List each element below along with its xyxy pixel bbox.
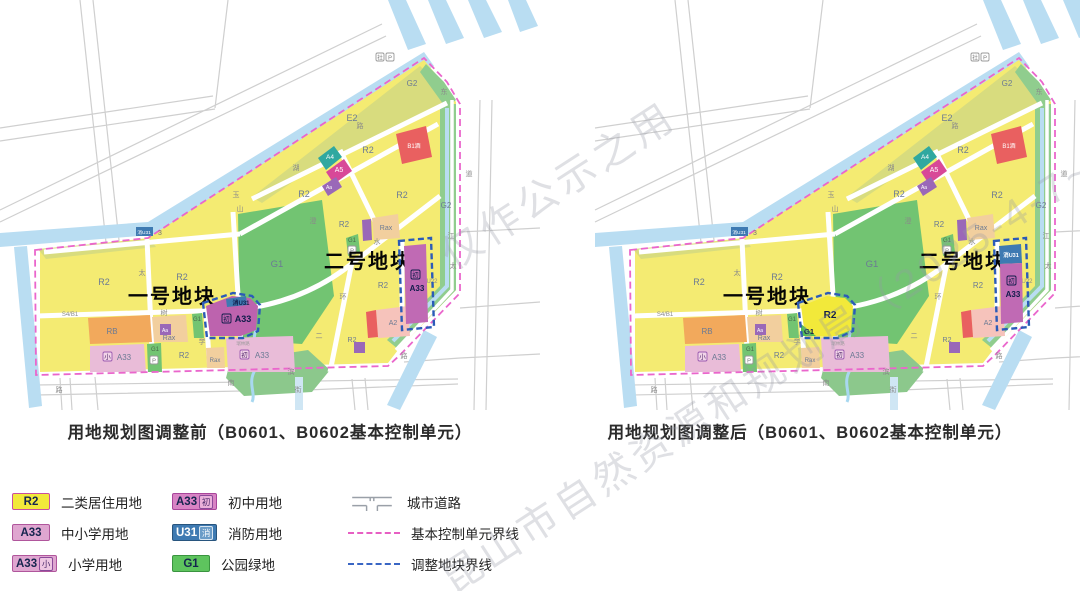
map-label: 滨 <box>288 367 295 376</box>
map-label: A33 <box>712 353 727 362</box>
map-label: A33 <box>410 284 425 293</box>
map-label: 湖 <box>888 163 895 172</box>
legend-subchip-a33-xiao: 小 <box>39 557 53 571</box>
map-label: 消U31 <box>1003 251 1019 259</box>
map-label: G1 <box>866 259 879 270</box>
map-label: 澄 <box>905 216 912 225</box>
legend-label-unit-boundary: 基本控制单元界线 <box>411 523 519 543</box>
map-label: Aa <box>326 185 332 191</box>
map-label: R2 <box>298 189 310 199</box>
map-label: RB <box>701 327 712 336</box>
map-after-content: PP社P小初湖澄玉山太树学水环二南滨街路路路东江太道瑞林路E2G2G2G1R2R… <box>595 0 1080 410</box>
legend-label-a33-xiao: 小学用地 <box>68 554 122 574</box>
legend-label-adjust-boundary: 调整地块界线 <box>411 554 492 574</box>
label-chip-char: 初 <box>223 314 229 323</box>
map-label: 水 <box>969 237 976 246</box>
map-label: A33 <box>850 351 865 360</box>
map-label: R2 <box>378 281 389 290</box>
map-label: S4/B1 <box>62 312 79 318</box>
city-road-icon <box>348 493 396 511</box>
label-chip-char: 初 <box>412 270 418 279</box>
map-label: 湖 <box>293 163 300 172</box>
legend: R2二类居住用地A33中小学用地A33小小学用地A33初初中用地U31消消防用地… <box>12 486 598 579</box>
map-label: 澄 <box>310 216 317 225</box>
map-label: 山 <box>832 204 839 213</box>
map-label: G2 <box>407 79 418 88</box>
map-label: R2 <box>339 220 350 229</box>
map-label: R2 <box>98 277 110 287</box>
map-after-panel: PP社P小初湖澄玉山太树学水环二南滨街路路路东江太道瑞林路E2G2G2G1R2R… <box>540 0 1080 412</box>
map-label: 环 <box>935 293 942 301</box>
map-label: 环 <box>340 293 347 301</box>
map-label: G1 <box>804 327 814 336</box>
map-before-panel: PP社P小初湖澄玉山太树学水环二南滨街路路路东江太道瑞林路E2G2G2G1R2R… <box>0 0 540 412</box>
map-label: E2 <box>346 113 357 123</box>
map-label: 山 <box>237 204 244 213</box>
map-label: 太 <box>139 268 146 277</box>
map-label: 路 <box>56 385 63 394</box>
map-label: 玉 <box>233 191 240 199</box>
legend-item-a33-xiao: A33小小学用地 <box>12 554 172 574</box>
label-chip-char: 社 <box>377 53 383 61</box>
canal-stripes <box>388 0 538 50</box>
canal-stripes <box>983 0 1080 50</box>
map-label: 街 <box>890 385 897 394</box>
map-label: 消U31 <box>232 299 250 307</box>
label-chip-char: P <box>388 55 392 61</box>
map-label: 江 <box>1043 232 1050 240</box>
b1-tiny-block <box>961 310 973 338</box>
map-label: R2 <box>774 351 785 360</box>
legend-label-a33: 中小学用地 <box>61 523 129 543</box>
map-label: 3 <box>158 230 162 237</box>
map-label: G2 <box>1036 201 1047 210</box>
legend-swatch-u31: U31消 <box>172 524 217 541</box>
legend-swatch-r2: R2 <box>12 493 50 510</box>
map-label: B1酒 <box>407 142 420 150</box>
label-chip-char: 社 <box>972 53 978 61</box>
map-label: A5 <box>930 167 939 174</box>
legend-label-u31: 消防用地 <box>228 523 282 543</box>
map-label: 树 <box>161 308 168 317</box>
planning-notice-page: PP社P小初湖澄玉山太树学水环二南滨街路路路东江太道瑞林路E2G2G2G1R2R… <box>0 0 1080 591</box>
legend-item-unit-boundary: 基本控制单元界线 <box>348 523 598 543</box>
map-label: A2 <box>389 320 398 327</box>
map-label: A33 <box>235 314 252 324</box>
map-label: G2 <box>1002 79 1013 88</box>
legend-label-g1: 公园绿地 <box>221 554 275 574</box>
legend-item-adjust-boundary: 调整地块界线 <box>348 554 598 574</box>
label-chip-char: 初 <box>241 350 247 359</box>
map-label: R2 <box>991 190 1003 200</box>
map-label: R2 <box>943 337 952 344</box>
legend-dash-adjust-boundary <box>348 563 400 565</box>
map-label: 瑞林路 <box>236 340 250 347</box>
legend-swatch-a33: A33 <box>12 524 50 541</box>
caption-after: 用地规划图调整后（B0601、B0602基本控制单元） <box>540 419 1080 443</box>
map-label: 江 <box>448 232 455 240</box>
map-before-content: PP社P小初湖澄玉山太树学水环二南滨街路路路东江太道瑞林路E2G2G2G1R2R… <box>0 0 540 410</box>
map-label: 消U31 <box>732 229 746 236</box>
map-label: 南 <box>228 378 235 387</box>
map-label: Rax <box>805 358 816 364</box>
b1-tiny-block <box>366 310 378 338</box>
legend-label-city-road: 城市道路 <box>407 492 461 512</box>
map-label: G1 <box>788 317 797 323</box>
map-label: R2 <box>179 351 190 360</box>
map-label: Rax <box>380 225 393 232</box>
legend-item-r2: R2二类居住用地 <box>12 492 172 512</box>
map-label: 路 <box>357 121 364 130</box>
map-label: 太 <box>1045 261 1052 270</box>
map-label: B1酒 <box>1002 142 1015 150</box>
legend-item-u31: U31消消防用地 <box>172 523 348 543</box>
map-label: R2 <box>176 272 188 282</box>
map-label: R2 <box>693 277 705 287</box>
map-label: RB <box>106 327 117 336</box>
aa-chip-mid <box>362 219 372 241</box>
aa-chip-mid <box>957 219 967 241</box>
map-label: A5 <box>335 167 344 174</box>
rb-block <box>88 315 152 344</box>
map-label: 太 <box>450 261 457 270</box>
legend-swatch-g1: G1 <box>172 555 210 572</box>
map-label: R2 <box>348 337 357 344</box>
label-chip-char: 初 <box>1008 276 1014 285</box>
map-label: 路 <box>401 351 408 360</box>
map-label: Aa <box>921 185 927 191</box>
map-label: 路 <box>996 351 1003 360</box>
map-label: G1 <box>193 317 202 323</box>
map-label: 路 <box>651 385 658 394</box>
map-label: R2 <box>824 310 837 321</box>
map-label: G1 <box>271 259 284 270</box>
map-label: G1 <box>746 347 755 353</box>
map-label: 3 <box>753 230 757 237</box>
map-label: R2 <box>973 281 984 290</box>
map-label: A33 <box>1006 290 1021 299</box>
map-label: 滨 <box>883 367 890 376</box>
map-label: 路 <box>952 121 959 130</box>
map-label: 东 <box>441 87 448 96</box>
map-label: 学 <box>199 337 206 346</box>
map-label: 道 <box>466 169 473 178</box>
map-label: A2 <box>984 320 993 327</box>
map-label: S4/B1 <box>657 312 674 318</box>
legend-item-city-road: 城市道路 <box>348 492 598 512</box>
map-label: R2 <box>362 145 374 155</box>
map-label: R2 <box>934 220 945 229</box>
map-label: 太 <box>734 268 741 277</box>
map-label: A4 <box>921 154 929 161</box>
legend-label-a33-chu: 初中用地 <box>228 492 282 512</box>
map-label: Rax <box>163 335 176 342</box>
legend-label-r2: 二类居住用地 <box>61 492 142 512</box>
map-label: G1 <box>151 347 160 353</box>
label-chip-char: 小 <box>699 352 706 361</box>
map-label: R2 <box>893 189 905 199</box>
label-chip-char: 小 <box>104 352 111 361</box>
map-label: G2 <box>441 201 452 210</box>
river-west <box>14 246 42 408</box>
legend-swatch-a33-chu: A33初 <box>172 493 217 510</box>
river-west <box>609 246 637 408</box>
rb-block <box>683 315 747 344</box>
map-label: E2 <box>941 113 952 123</box>
map-label: 消U31 <box>137 229 151 236</box>
legend-subchip-a33-chu: 初 <box>199 495 213 509</box>
map-label: A4 <box>326 154 334 161</box>
map-label: 树 <box>756 308 763 317</box>
map-label: 街 <box>295 385 302 394</box>
label-chip-char: 初 <box>836 350 842 359</box>
map-label: R2 <box>771 272 783 282</box>
map-after-canvas: PP社P小初湖澄玉山太树学水环二南滨街路路路东江太道瑞林路E2G2G2G1R2R… <box>540 0 1080 412</box>
map-label: Aa <box>757 328 763 334</box>
legend-item-a33: A33中小学用地 <box>12 523 172 543</box>
map-label: 玉 <box>828 191 835 199</box>
map-label: Rax <box>975 225 988 232</box>
map-label: 瑞林路 <box>831 340 845 347</box>
map-before-canvas: PP社P小初湖澄玉山太树学水环二南滨街路路路东江太道瑞林路E2G2G2G1R2R… <box>0 0 540 412</box>
map-label: 道 <box>1061 169 1068 178</box>
legend-item-g1: G1公园绿地 <box>172 554 348 574</box>
map-label: Rax <box>210 358 221 364</box>
map-label: 学 <box>794 337 801 346</box>
legend-dash-unit-boundary <box>348 532 400 534</box>
map-label: 二 <box>316 333 323 340</box>
legend-swatch-a33-xiao: A33小 <box>12 555 57 572</box>
map-label: A33 <box>255 351 270 360</box>
map-label: R2 <box>957 145 969 155</box>
map-label: G1 <box>943 238 952 244</box>
map-label: G1 <box>348 238 357 244</box>
map-label: 东 <box>1036 87 1043 96</box>
caption-before: 用地规划图调整前（B0601、B0602基本控制单元） <box>0 419 540 443</box>
map-label: 二 <box>911 333 918 340</box>
label-chip-char: P <box>152 358 156 364</box>
map-label: Aa <box>162 328 168 334</box>
legend-subchip-u31: 消 <box>199 526 213 540</box>
map-label: 南 <box>823 378 830 387</box>
map-label: A33 <box>117 353 132 362</box>
map-label: Rax <box>758 335 771 342</box>
map-label: 水 <box>374 237 381 246</box>
label-chip-char: P <box>983 55 987 61</box>
label-chip-char: P <box>747 358 751 364</box>
legend-item-a33-chu: A33初初中用地 <box>172 492 348 512</box>
map-label: R2 <box>396 190 408 200</box>
